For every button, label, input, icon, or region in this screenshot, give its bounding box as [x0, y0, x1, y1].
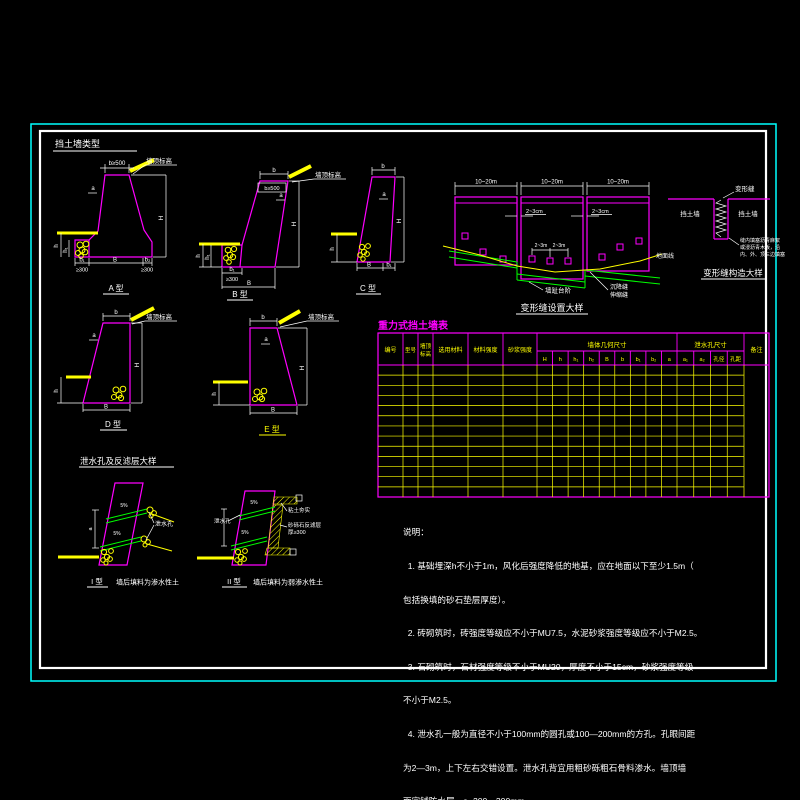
label-wall-right: 挡土墙 [738, 209, 758, 218]
label-weep-hole: 泄水孔 [155, 520, 173, 528]
caption-filter-type-2: II 型 [227, 577, 241, 586]
label-slope: 5% [113, 531, 121, 537]
dim-b1: b₁ [79, 258, 84, 264]
dim-span: 10~20m [607, 180, 629, 186]
caption-type-b: B 型 [232, 290, 248, 299]
foundation-steps [449, 251, 660, 288]
group-header-geometry: 墙体几何尺寸 [588, 340, 628, 349]
dim-b1: b₁ [229, 267, 234, 273]
table-subheader: a₂ [700, 357, 705, 363]
filter-type-1: 5% 5% 泄水孔 a I 型 墙后填料为渗水性土 [58, 483, 179, 587]
hole-spacing-dimensions: 2~3m 2~3m [532, 243, 568, 257]
section-title-filter: 泄水孔及反滤层大样 [80, 456, 157, 466]
wall-outline [99, 483, 143, 565]
notes-line: 面宜铺防水层。a=200—300mm。 [403, 796, 775, 800]
stone-symbol [253, 388, 267, 401]
wall-outline [75, 175, 152, 257]
caption-filter-type-2-desc: 墙后填料为弱渗水性土 [253, 578, 323, 587]
table-subheader: b [621, 357, 624, 363]
detail-title-joint-layout: 变形缝设置大样 [520, 302, 583, 313]
notes-line: 不小于M2.5。 [403, 695, 775, 706]
dim-h: h [196, 254, 202, 257]
span-dimensions: 10~20m 10~20m 10~20m [455, 180, 649, 196]
joint-filler-zigzag [716, 200, 726, 237]
dim-H: H [134, 362, 141, 367]
table-subheader: 孔距 [730, 355, 742, 363]
dim-a: a [279, 193, 283, 199]
dim-b: b [272, 168, 276, 174]
section-title-wall-types: 挡土墙类型 [55, 138, 100, 149]
filter-layer-band [268, 505, 283, 548]
dim-H: H [299, 365, 306, 370]
wall-outline [222, 181, 288, 267]
cad-drawing-canvas: 挡土墙类型 b≥500 墙顶标高 a H h h₁ [0, 0, 800, 800]
wall-type-a: b≥500 墙顶标高 a H h h₁ b₁ B b₂ ≥300 ≥300 A … [54, 156, 177, 294]
dim-B: B [247, 281, 251, 287]
detail-title-joint-structure: 变形缝构造大样 [703, 268, 763, 278]
caption-type-e: E 型 [264, 425, 280, 434]
dimensions-d: b 墙顶标高 a H h B [54, 310, 177, 412]
caption-type-c: C 型 [360, 284, 376, 293]
notes-block: 说明： 1. 基础埋深h不小于1m，风化后强度降低的地基，应在地面以下至少1.5… [403, 505, 775, 800]
dim-a: a [382, 192, 386, 198]
stone-symbol [358, 244, 371, 262]
col-header-material-strength: 材料强度 [473, 346, 497, 354]
stone-symbol [235, 549, 248, 565]
dim-hole-spacing: 2~3m [535, 243, 548, 249]
dim-a: a [91, 186, 95, 192]
slope-line [279, 311, 300, 323]
dimensions-b: b b≥500 墙顶标高 a H h h₁ b₁ ≥300 B [196, 168, 346, 289]
table-grid: Hhh₁h₂Bbb₁b₂aa₁a₂孔径孔距 [378, 333, 769, 497]
label-slope: 5% [241, 530, 249, 536]
label-filter-layer: 砂砾石反滤层 [288, 521, 322, 529]
dim-h: h [330, 247, 336, 250]
table-subheader: a [668, 357, 672, 363]
dim-h1: h₁ [63, 247, 69, 252]
dim-hole-spacing: 2~3m [553, 243, 566, 249]
label-ground-line: 地面线 [656, 252, 674, 260]
label-slope: 5% [120, 503, 128, 509]
label-expansion-joint: 伸缩缝 [610, 291, 628, 299]
table-subheader: h [559, 357, 562, 363]
dim-b: b [114, 310, 118, 316]
dim-joint-width: 2~3cm [526, 209, 543, 215]
stone-symbol [224, 246, 237, 264]
dim-H: H [396, 218, 403, 223]
group-header-weep-hole: 泄水孔尺寸 [694, 340, 727, 349]
dimensions-a: b≥500 墙顶标高 a H h h₁ b₁ B b₂ ≥300 ≥300 [54, 156, 177, 274]
strip-end-marker [290, 549, 296, 555]
stone-symbol [112, 386, 126, 400]
dim-b: b [261, 315, 265, 321]
label-wall-left: 挡土墙 [680, 209, 700, 218]
filter-detail-section: 泄水孔及反滤层大样 5% 5% 泄水孔 a [58, 456, 323, 587]
label-joint: 变形缝 [735, 184, 755, 193]
col-header-mortar-strength: 砂浆强度 [508, 346, 532, 354]
wall-type-e: b 墙顶标高 a H h B E 型 [212, 311, 339, 435]
caption-filter-type-1-desc: 墙后填料为渗水性土 [116, 578, 179, 587]
table-subheader: B [605, 357, 609, 363]
table-subheader: 孔径 [713, 355, 725, 363]
wall-outline [250, 328, 297, 405]
wall-table: 重力式挡土墙表 Hhh₁h₂Bbb₁b₂aa₁a₂孔径孔距 编号 型号 墙顶 标… [378, 319, 769, 497]
stone-symbol [76, 241, 89, 258]
dim-h1: h₁ [205, 254, 211, 259]
dim-span: 10~20m [475, 180, 497, 186]
dim-h: h [212, 392, 218, 395]
table-subheader: H [543, 357, 547, 363]
label-toe-step: 墙趾台阶 [545, 286, 572, 295]
dim-b-min: b≥500 [109, 161, 126, 167]
clay-cap [273, 497, 297, 504]
dim-B: B [113, 258, 117, 264]
dim-a: a [88, 527, 94, 531]
label-top-elevation: 墙顶标高 [146, 156, 173, 165]
label-top-elevation: 墙顶标高 [146, 312, 173, 321]
label-slope: 5% [250, 500, 258, 506]
notes-line: 1. 基础埋深h不小于1m，风化后强度降低的地基，应在地面以下至少1.5m（ [403, 561, 775, 572]
col-header-elev-1: 墙顶 [420, 342, 432, 350]
dim-H: H [158, 215, 165, 220]
dim-b-min: b≥500 [264, 186, 279, 192]
dim-b: b [381, 164, 385, 170]
table-subheader: b₁ [636, 357, 641, 363]
label-top-elevation: 墙顶标高 [315, 170, 342, 179]
caption-type-d: D 型 [105, 420, 121, 429]
label-settlement-joint: 沉降缝 [610, 283, 628, 291]
dim-h: h [54, 244, 60, 247]
notes-line: 包括换填的砂石垫层厚度）。 [403, 595, 775, 606]
dim-ge300: ≥300 [226, 277, 238, 283]
table-subheader: h₂ [589, 357, 594, 363]
dim-B: B [271, 408, 275, 414]
label-filter-thickness: 厚≥300 [288, 529, 306, 536]
filter-type-2: 5% 5% 粘土夯实 砂砾石反滤层 厚≥300 泄水孔 II 型 墙后填料为弱渗… [197, 491, 323, 587]
dim-b1: b₁ [386, 263, 391, 269]
label-joint-fill-2: 或浸沥青木板，沿 [740, 244, 780, 251]
col-header-elev-2: 标高 [420, 350, 432, 358]
dim-ge300: ≥300 [141, 268, 153, 274]
joint-layout-detail: 10~20m 10~20m 10~20m 2~3cm 2~3cm 2~3m 2~… [443, 180, 662, 315]
caption-filter-type-1: I 型 [91, 577, 103, 586]
dim-joint-width: 2~3cm [592, 209, 609, 215]
wall-outline [83, 323, 130, 403]
notes-line: 3. 石砌筑时，石材强度等级不小于MU20，厚度不小于15cm，砂浆强度等级 [403, 662, 775, 673]
col-header-material: 选用材料 [438, 346, 462, 354]
dim-ge300: ≥300 [76, 268, 88, 274]
table-subheader: h₁ [573, 357, 578, 363]
dim-H: H [291, 221, 298, 226]
label-joint-fill-3: 内、外、顶三边填塞 [740, 251, 785, 258]
table-subheader: a₁ [683, 357, 688, 363]
col-header-number: 编号 [384, 346, 396, 354]
label-top-elevation: 墙顶标高 [308, 312, 335, 321]
stone-symbol [101, 549, 114, 565]
dim-h: h [54, 389, 60, 392]
table-title: 重力式挡土墙表 [378, 319, 449, 332]
notes-line: 说明： [403, 527, 775, 538]
col-header-type: 型号 [405, 346, 417, 354]
weep-pipes [100, 509, 147, 551]
table-subheader: b₂ [651, 357, 656, 363]
dim-a: a [264, 337, 268, 343]
label-clay: 粘土夯实 [288, 506, 311, 514]
label-joint-fill-1: 缝内填塞沥青麻絮 [740, 237, 780, 244]
wall-type-b: b b≥500 墙顶标高 a H h h₁ b₁ ≥300 B B 型 [196, 166, 346, 300]
dim-B: B [367, 263, 371, 269]
notes-line: 2. 砖砌筑时，砖强度等级应不小于MU7.5，水泥砂浆强度等级应不小于M2.5。 [403, 628, 775, 639]
bottom-drain-strip [265, 548, 290, 555]
col-header-remark: 备注 [750, 346, 762, 354]
caption-type-a: A 型 [108, 284, 123, 293]
dim-span: 10~20m [541, 180, 563, 186]
dim-b2: b₂ [145, 258, 151, 264]
dim-B: B [104, 405, 108, 411]
wall-type-c: b a H h B b₁ C 型 [330, 164, 404, 294]
dim-a: a [92, 333, 96, 339]
slope-line [289, 166, 311, 177]
notes-line: 4. 泄水孔一般为直径不小于100mm的圆孔或100—200mm的方孔。孔眼间距 [403, 729, 775, 740]
notes-line: 为2—3m，上下左右交错设置。泄水孔背宜用粗砂砾粗石骨料渗水。墙顶墙 [403, 763, 775, 774]
wall-type-d: b 墙顶标高 a H h B D 型 [54, 308, 177, 430]
